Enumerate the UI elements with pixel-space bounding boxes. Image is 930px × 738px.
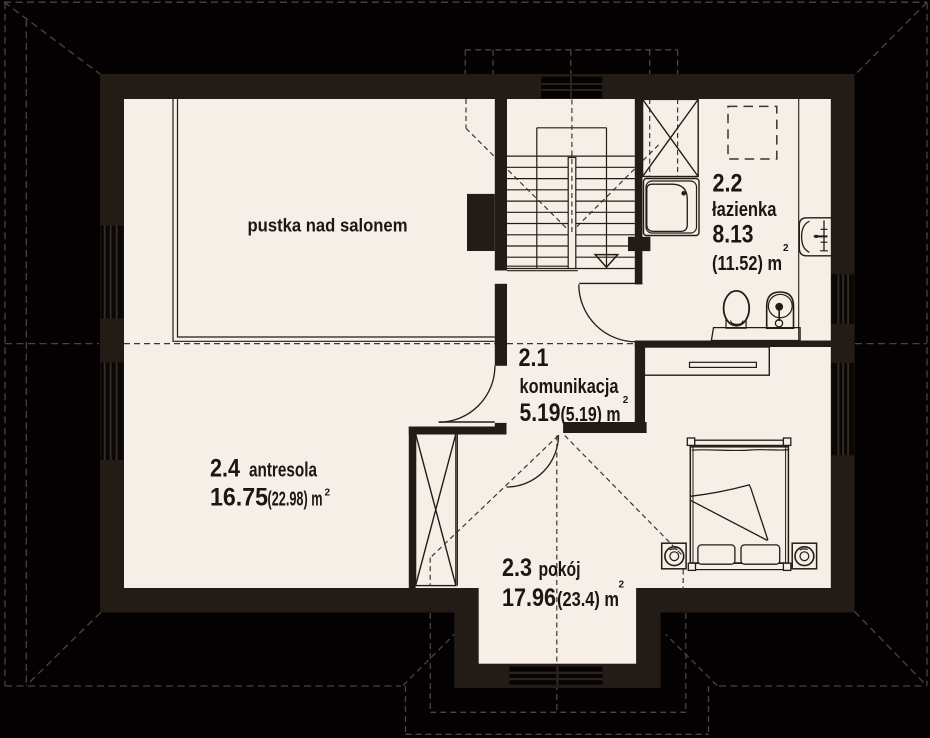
- svg-text:pustka nad salonem: pustka nad salonem: [248, 216, 408, 236]
- svg-text:(5.19) m: (5.19) m: [561, 404, 621, 426]
- svg-text:2: 2: [325, 488, 331, 499]
- svg-text:2.2: 2.2: [713, 170, 743, 198]
- svg-text:(22.98) m: (22.98) m: [268, 488, 323, 510]
- svg-text:8.13: 8.13: [713, 220, 754, 248]
- svg-text:(11.52) m: (11.52) m: [712, 253, 782, 275]
- svg-text:2: 2: [623, 395, 629, 406]
- svg-text:16.75: 16.75: [210, 483, 268, 511]
- svg-text:antresola: antresola: [249, 460, 318, 482]
- svg-text:5.19: 5.19: [520, 399, 561, 427]
- svg-text:2.1: 2.1: [519, 344, 549, 372]
- svg-text:komunikacja: komunikacja: [520, 376, 620, 398]
- svg-text:2.3: 2.3: [502, 554, 532, 582]
- svg-text:17.96: 17.96: [502, 584, 556, 612]
- svg-text:2.4: 2.4: [210, 455, 240, 483]
- svg-text:łazienka: łazienka: [712, 199, 777, 221]
- svg-text:(23.4) m: (23.4) m: [557, 589, 619, 611]
- svg-text:pokój: pokój: [539, 559, 581, 581]
- svg-text:2: 2: [619, 579, 625, 590]
- svg-text:2: 2: [783, 243, 789, 254]
